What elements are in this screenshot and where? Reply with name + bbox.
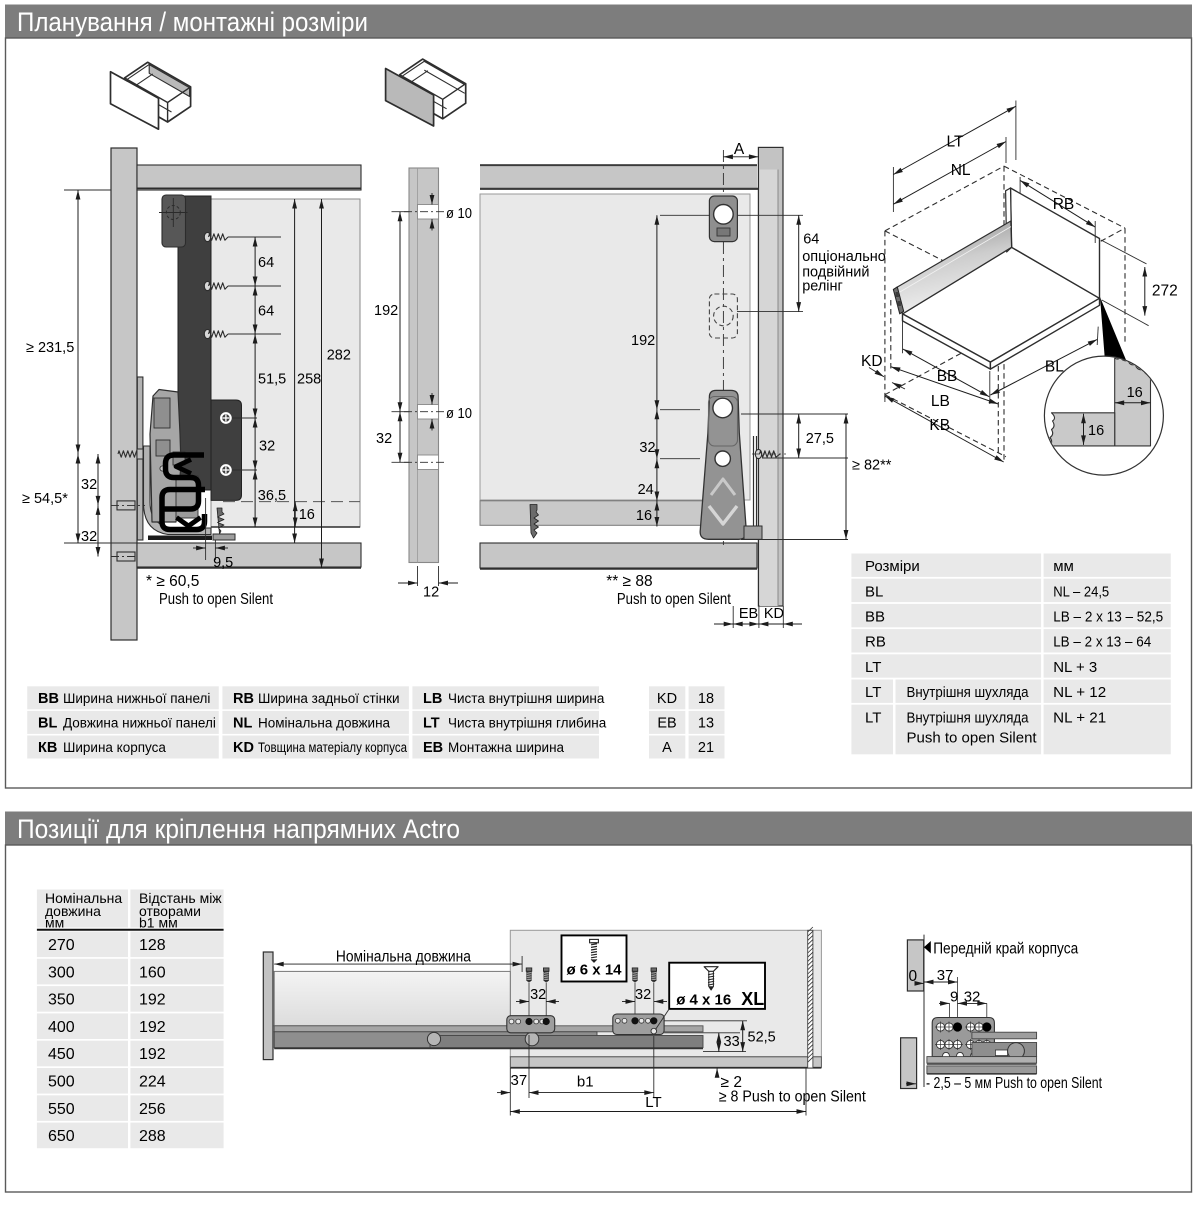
svg-text:LT: LT — [423, 715, 440, 731]
svg-text:Номінальна довжина: Номінальна довжина — [258, 715, 391, 730]
svg-text:21: 21 — [698, 740, 714, 756]
svg-text:32: 32 — [81, 477, 97, 493]
svg-text:Ширина нижньої панелі: Ширина нижньої панелі — [63, 691, 210, 706]
svg-text:NL + 12: NL + 12 — [1053, 684, 1106, 701]
svg-text:Push to open Silent: Push to open Silent — [617, 591, 732, 608]
svg-text:192: 192 — [374, 303, 398, 319]
svg-text:64: 64 — [258, 255, 274, 271]
svg-text:ø 6 x 14: ø 6 x 14 — [566, 962, 622, 979]
svg-text:Розміри: Розміри — [865, 558, 920, 575]
svg-text:≥ 8 Push to open Silent: ≥ 8 Push to open Silent — [719, 1089, 867, 1106]
svg-text:BB: BB — [865, 609, 885, 626]
svg-text:27,5: 27,5 — [806, 431, 834, 447]
svg-text:LT: LT — [947, 134, 964, 151]
svg-text:ø 10: ø 10 — [446, 206, 472, 222]
svg-text:37: 37 — [937, 967, 954, 984]
svg-text:BL: BL — [38, 715, 57, 731]
svg-text:160: 160 — [139, 964, 166, 981]
svg-text:13: 13 — [698, 715, 714, 731]
svg-text:* ≥ 60,5: * ≥ 60,5 — [146, 573, 199, 590]
svg-text:300: 300 — [48, 964, 75, 981]
svg-text:32: 32 — [259, 439, 275, 455]
svg-text:272: 272 — [1152, 283, 1178, 300]
svg-text:Планування / монтажні розміри: Планування / монтажні розміри — [17, 7, 368, 37]
svg-text:52,5: 52,5 — [748, 1029, 776, 1045]
svg-text:33: 33 — [724, 1034, 740, 1050]
svg-text:LB – 2 x 13 – 64: LB – 2 x 13 – 64 — [1053, 634, 1151, 651]
svg-text:KD: KD — [861, 353, 883, 370]
svg-text:288: 288 — [139, 1128, 166, 1145]
svg-text:Push to open Silent: Push to open Silent — [907, 729, 1038, 746]
svg-text:Внутрішня шухляда: Внутрішня шухляда — [907, 709, 1030, 726]
svg-text:Номінальна довжина: Номінальна довжина — [336, 949, 471, 966]
svg-text:450: 450 — [48, 1046, 75, 1063]
svg-text:NL – 24,5: NL – 24,5 — [1053, 583, 1109, 600]
svg-text:A: A — [734, 141, 745, 158]
svg-text:NL: NL — [233, 715, 252, 731]
svg-text:16: 16 — [636, 508, 652, 524]
svg-text:32: 32 — [530, 987, 546, 1003]
svg-text:ø 4 x 16: ø 4 x 16 — [676, 992, 731, 1009]
svg-text:Монтажна ширина: Монтажна ширина — [448, 740, 565, 755]
svg-text:KD: KD — [233, 740, 254, 756]
svg-text:LB: LB — [931, 393, 950, 410]
svg-text:b1 мм: b1 мм — [139, 915, 178, 931]
svg-text:16: 16 — [1127, 385, 1143, 401]
svg-text:A: A — [662, 740, 672, 756]
svg-text:18: 18 — [698, 691, 714, 707]
svg-text:LT: LT — [865, 709, 881, 726]
svg-text:32: 32 — [635, 987, 651, 1003]
svg-text:NL: NL — [951, 162, 971, 179]
svg-text:12: 12 — [423, 585, 439, 601]
svg-text:RB: RB — [865, 634, 886, 651]
svg-text:400: 400 — [48, 1019, 75, 1036]
svg-text:≥ 82**: ≥ 82** — [852, 457, 892, 473]
svg-text:192: 192 — [139, 1046, 166, 1063]
svg-text:BL: BL — [865, 583, 883, 600]
svg-text:Ширина задньої стінки: Ширина задньої стінки — [258, 691, 400, 706]
svg-text:опціонально: опціонально — [802, 249, 886, 265]
svg-text:BB: BB — [937, 368, 958, 385]
svg-text:EB: EB — [657, 715, 676, 731]
svg-text:LB: LB — [423, 691, 442, 707]
svg-text:Товщина матеріалу корпуса: Товщина матеріалу корпуса — [258, 740, 407, 755]
svg-text:b1: b1 — [577, 1074, 594, 1091]
svg-text:258: 258 — [297, 372, 321, 388]
svg-text:9,5: 9,5 — [213, 555, 233, 571]
svg-text:XL: XL — [741, 989, 764, 1009]
svg-text:32: 32 — [376, 431, 392, 447]
svg-text:350: 350 — [48, 992, 75, 1009]
svg-text:192: 192 — [139, 992, 166, 1009]
svg-text:282: 282 — [327, 348, 351, 364]
svg-text:KD: KD — [657, 691, 677, 707]
svg-text:NL + 3: NL + 3 — [1053, 659, 1097, 676]
svg-text:≥ 231,5: ≥ 231,5 — [26, 340, 74, 356]
svg-text:650: 650 — [48, 1128, 75, 1145]
svg-text:64: 64 — [258, 304, 274, 320]
svg-text:Внутрішня шухляда: Внутрішня шухляда — [907, 684, 1030, 701]
svg-text:192: 192 — [631, 333, 655, 349]
svg-text:51,5: 51,5 — [258, 372, 286, 388]
svg-text:32: 32 — [639, 440, 655, 456]
svg-text:16: 16 — [1088, 423, 1104, 439]
svg-text:ø 10: ø 10 — [446, 406, 472, 422]
svg-text:RB: RB — [1053, 196, 1075, 213]
svg-text:16: 16 — [299, 507, 315, 523]
svg-text:KB: KB — [929, 417, 950, 434]
svg-text:Позиції для кріплення напрямни: Позиції для кріплення напрямних Actro — [17, 814, 460, 844]
svg-text:мм: мм — [45, 915, 64, 931]
svg-text:мм: мм — [1053, 558, 1074, 575]
svg-text:LB – 2 x 13 – 52,5: LB – 2 x 13 – 52,5 — [1053, 609, 1163, 626]
svg-text:Push to open Silent: Push to open Silent — [159, 591, 274, 608]
svg-text:Чиста внутрішня глибина: Чиста внутрішня глибина — [448, 715, 607, 730]
svg-text:Чиста внутрішня ширина: Чиста внутрішня ширина — [448, 691, 605, 706]
svg-text:32: 32 — [81, 529, 97, 545]
svg-text:256: 256 — [139, 1101, 166, 1118]
svg-text:Довжина нижньої панелі: Довжина нижньої панелі — [63, 715, 216, 730]
svg-text:RB: RB — [233, 691, 254, 707]
svg-text:KD: KD — [764, 606, 784, 622]
svg-text:Передній край корпуса: Передній край корпуса — [933, 941, 1078, 958]
svg-text:** ≥ 88: ** ≥ 88 — [606, 573, 652, 590]
svg-text:224: 224 — [139, 1074, 166, 1091]
svg-text:Ширина корпуса: Ширина корпуса — [63, 740, 166, 755]
svg-text:500: 500 — [48, 1074, 75, 1091]
svg-text:релінг: релінг — [802, 279, 843, 295]
svg-text:≥ 54,5*: ≥ 54,5* — [22, 491, 68, 507]
svg-text:BL: BL — [1045, 359, 1064, 376]
svg-text:64: 64 — [803, 231, 819, 247]
svg-text:LT: LT — [865, 684, 881, 701]
svg-text:LT: LT — [865, 659, 881, 676]
svg-text:LT: LT — [645, 1094, 661, 1111]
svg-text:КВ: КВ — [38, 740, 57, 756]
svg-text:270: 270 — [48, 937, 75, 954]
svg-text:EB: EB — [739, 606, 758, 622]
svg-text:NL + 21: NL + 21 — [1053, 709, 1106, 726]
svg-text:192: 192 — [139, 1019, 166, 1036]
svg-text:37: 37 — [511, 1072, 528, 1089]
svg-text:36,5: 36,5 — [258, 488, 286, 504]
svg-text:BB: BB — [38, 691, 59, 707]
svg-text:9: 9 — [950, 989, 958, 1006]
svg-text:0: 0 — [909, 968, 918, 985]
svg-text:24: 24 — [638, 482, 654, 498]
svg-text:550: 550 — [48, 1101, 75, 1118]
svg-text:EB: EB — [423, 740, 443, 756]
svg-text:128: 128 — [139, 937, 166, 954]
svg-text:- 2,5 – 5 мм Push to open Sile: - 2,5 – 5 мм Push to open Silent — [926, 1075, 1103, 1092]
